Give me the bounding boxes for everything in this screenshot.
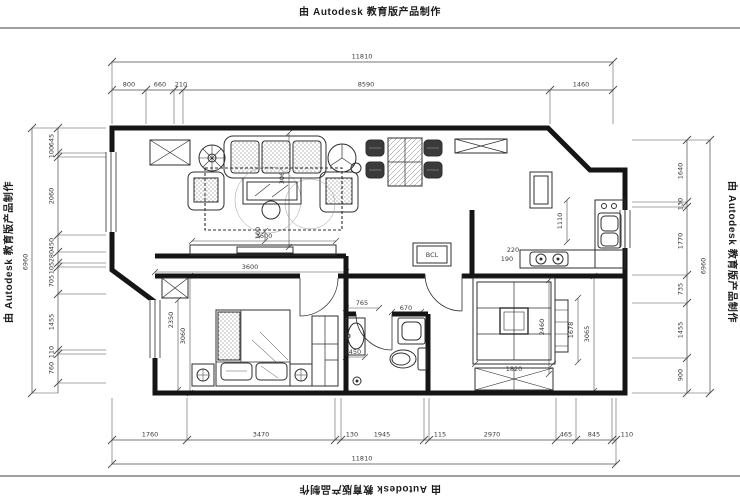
bed-blanket xyxy=(218,312,240,360)
stove-burner xyxy=(557,258,559,260)
dimension-label: 645 xyxy=(48,134,56,146)
dimension-label: 1455 xyxy=(48,314,56,331)
platform-box-cross xyxy=(475,368,553,390)
entry-closet xyxy=(534,176,548,204)
dimension-label: 800 xyxy=(123,81,135,89)
dimension-label: 3470 xyxy=(253,431,270,439)
dimension-label: 2060 xyxy=(48,188,56,205)
dimension-label: 280 xyxy=(48,250,56,262)
wardrobe-shelves xyxy=(312,316,338,386)
floor-drain xyxy=(356,380,358,382)
dimension-label: 220 xyxy=(507,246,519,254)
pillow xyxy=(221,363,252,380)
dimension-label: 760 xyxy=(48,362,56,374)
dimension-label: 1640 xyxy=(677,163,685,180)
washing-machine-drum xyxy=(402,322,421,340)
dimension-label: 2350 xyxy=(167,312,175,329)
dimension-label: 110 xyxy=(48,346,56,358)
door-bathroom xyxy=(356,314,392,350)
entry-closet xyxy=(530,172,552,208)
dimension-label: 1455 xyxy=(677,322,685,339)
dimension-label: 670 xyxy=(400,304,412,312)
column-box-cross xyxy=(162,278,188,298)
dimension-label: 2460 xyxy=(538,319,546,336)
dimension-label: 900 xyxy=(677,369,685,381)
dimension-label: 450 xyxy=(48,238,56,250)
dimension-label: 465 xyxy=(560,431,572,439)
pillow xyxy=(256,363,287,380)
dimension-label: 190 xyxy=(501,255,513,263)
dimension-label: 1760 xyxy=(142,431,159,439)
toilet-bowl xyxy=(392,353,410,365)
dimension-label: 6960 xyxy=(22,254,30,271)
dimension-label: 2970 xyxy=(484,431,501,439)
flue-box-cross xyxy=(150,140,190,165)
dimension-label: 705 xyxy=(48,275,56,287)
dimension-label: 1460 xyxy=(573,81,590,89)
window-living-west xyxy=(106,152,117,232)
dimension-label: 100 xyxy=(48,146,56,158)
dimension-label: 100 xyxy=(254,227,262,239)
dimension-label: 105 xyxy=(48,262,56,274)
stove-burner xyxy=(540,258,542,260)
kitchen-sink-basin xyxy=(601,216,618,231)
watermark-right: 由 Autodesk 教育版产品制作 xyxy=(726,181,739,323)
floor-plan-svg: 由 Autodesk 教育版产品制作 由 Autodesk 教育版产品制作 由 … xyxy=(0,0,740,500)
door-tatami-room xyxy=(425,274,462,311)
shoe-cabinet-cross xyxy=(455,139,507,153)
dimension-label: 845 xyxy=(588,431,600,439)
coffee-table-glass xyxy=(247,182,297,200)
dimension-label: 3065 xyxy=(583,326,591,343)
watermark-top: 由 Autodesk 教育版产品制作 xyxy=(299,5,441,18)
dimension-label: 765 xyxy=(356,299,368,307)
dimension-label: 130 xyxy=(346,431,358,439)
dimension-label: 6960 xyxy=(700,258,708,275)
sink-knob xyxy=(602,204,607,209)
dimension-label: 735 xyxy=(677,283,685,295)
tv xyxy=(237,247,293,253)
watermark-left: 由 Autodesk 教育版产品制作 xyxy=(2,181,15,323)
dimension-label: 11810 xyxy=(352,53,373,61)
plan-drawing: 1181080066021085901460176034701301945115… xyxy=(22,53,715,469)
dimension-label: 110 xyxy=(621,431,633,439)
fridge-label: BCL xyxy=(426,251,439,259)
dimension-label: 3060 xyxy=(179,328,187,345)
dimension-label: 130 xyxy=(677,198,685,210)
dimension-label: 660 xyxy=(154,81,166,89)
dimension-label: 11810 xyxy=(352,455,373,463)
dimension-label: 210 xyxy=(175,81,187,89)
bed-fold xyxy=(252,332,288,362)
watermark-bottom: 由 Autodesk 教育版产品制作 xyxy=(299,483,441,496)
dimension-label: 3600 xyxy=(242,263,259,271)
kitchen-sink-basin xyxy=(601,233,618,246)
armchair-cushion xyxy=(326,178,352,204)
coffee-table-glass xyxy=(255,184,288,197)
armchair-cushion xyxy=(194,178,218,202)
door-bedroom xyxy=(300,278,338,316)
sink-knob xyxy=(612,204,617,209)
dimension-label: 1110 xyxy=(556,213,564,230)
dimension-label: 115 xyxy=(434,431,446,439)
dimension-label: 8590 xyxy=(358,81,375,89)
dimension-label: 1945 xyxy=(374,431,391,439)
dimension-label: 1770 xyxy=(677,233,685,250)
